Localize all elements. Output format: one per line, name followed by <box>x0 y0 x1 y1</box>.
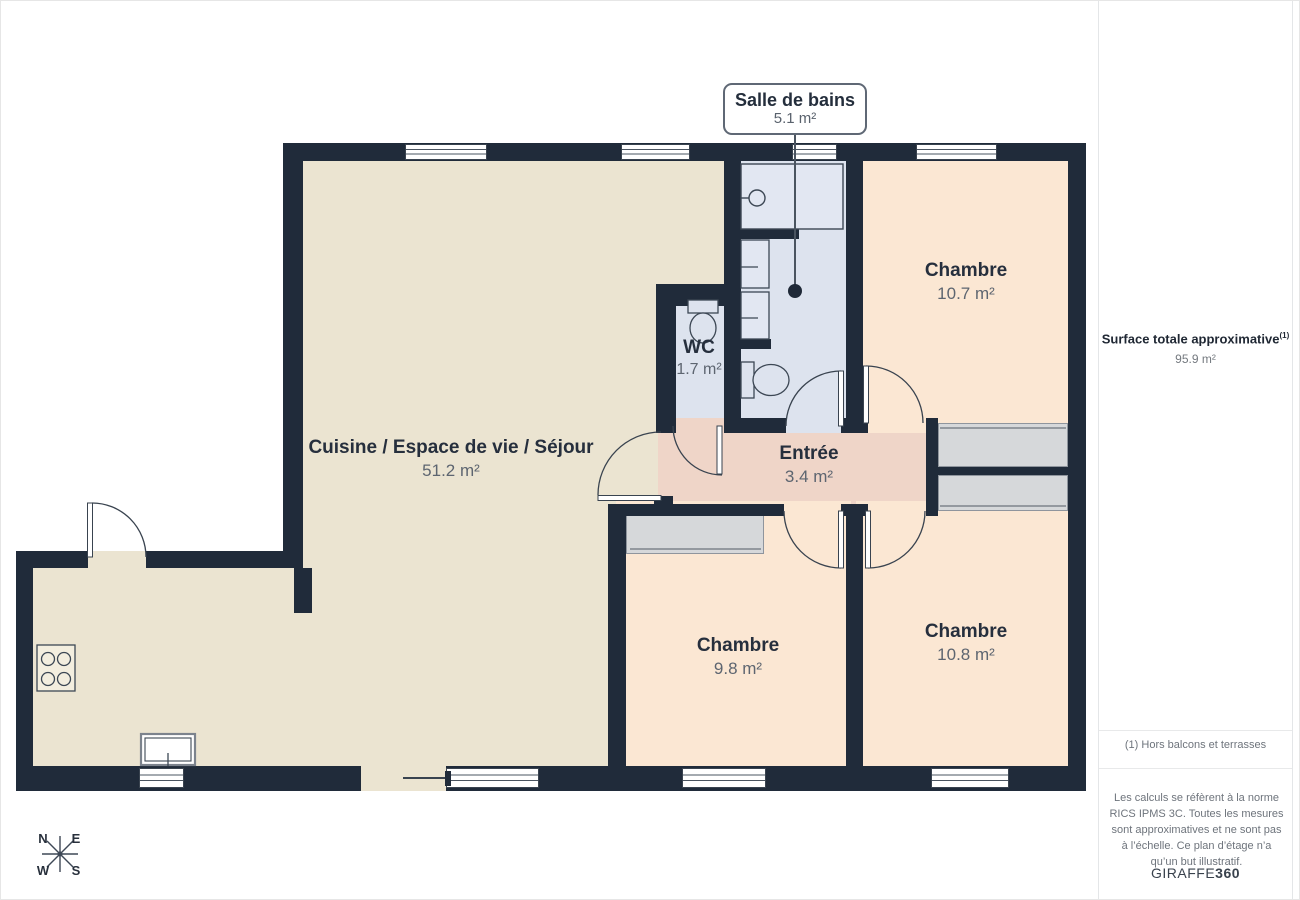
wall-segment <box>283 143 303 554</box>
room-area: 1.7 m² <box>649 361 749 379</box>
brand-logo: GIRAFFE360 <box>1099 865 1292 881</box>
room-area: 3.4 m² <box>739 467 879 487</box>
wc-door-threshold <box>676 418 724 433</box>
compass-n: N <box>38 831 47 846</box>
room-label-chambre3: Chambre 10.8 m² <box>896 621 1036 665</box>
total-area-title-text: Surface totale approximative <box>1102 331 1280 346</box>
total-area-value: 95.9 m² <box>1099 352 1292 366</box>
room-label-cuisine: Cuisine / Espace de vie / Séjour 51.2 m² <box>301 437 601 481</box>
closet <box>626 514 764 554</box>
room-name: Chambre <box>896 260 1036 282</box>
divider <box>1099 730 1292 731</box>
disclaimer-text: Les calculs se réfèrent à la norme RICS … <box>1109 791 1284 871</box>
room-bathroom-floor <box>736 151 851 433</box>
info-sidebar: Surface totale approximative(1) 95.9 m² … <box>1098 1 1293 900</box>
window <box>916 144 997 160</box>
room-name: Chambre <box>896 621 1036 643</box>
entry-door-opening <box>88 551 146 568</box>
wall-segment <box>846 143 863 433</box>
wall-segment <box>608 504 626 766</box>
door-leaf <box>88 503 93 557</box>
floor-plan-canvas: N E W S Cuisine / Espace de vie / Séjour… <box>0 0 1300 900</box>
brand-suffix: 360 <box>1215 865 1240 881</box>
divider <box>1099 768 1292 769</box>
wall-segment <box>846 511 863 766</box>
room-cuisine-extension-floor <box>26 559 303 776</box>
callout-area: 5.1 m² <box>774 110 817 127</box>
door-arc <box>92 503 146 557</box>
compass-e: E <box>72 831 81 846</box>
room-name: WC <box>649 337 749 359</box>
wall-segment <box>926 418 938 516</box>
bathroom-callout: Salle de bains 5.1 m² <box>723 83 867 135</box>
closet <box>938 423 1068 467</box>
brand-name: GIRAFFE <box>1151 865 1215 881</box>
wall-segment <box>16 551 33 791</box>
wall-segment <box>294 568 312 613</box>
total-area-title-footnote-marker: (1) <box>1279 331 1289 340</box>
compass-icon <box>42 836 78 872</box>
room-label-chambre1: Chambre 10.7 m² <box>896 260 1036 304</box>
wall-segment <box>724 229 799 239</box>
room-label-chambre2: Chambre 9.8 m² <box>668 635 808 679</box>
callout-title: Salle de bains <box>735 91 855 111</box>
wall-segment <box>16 551 303 568</box>
footnote-text: (1) Hors balcons et terrasses <box>1099 739 1292 751</box>
wall-segment <box>1068 143 1086 791</box>
compass-s: S <box>72 863 81 878</box>
compass-w: W <box>37 863 50 878</box>
window <box>446 768 539 788</box>
room-name: Entrée <box>739 443 879 465</box>
room-area: 10.7 m² <box>896 284 1036 304</box>
window <box>931 768 1009 788</box>
window <box>405 144 487 160</box>
total-area-title: Surface totale approximative(1) <box>1099 331 1292 346</box>
room-area: 10.8 m² <box>896 645 1036 665</box>
window <box>621 144 690 160</box>
window <box>682 768 766 788</box>
wall-segment <box>619 504 784 516</box>
room-area: 9.8 m² <box>668 659 808 679</box>
compass-letters: N E W S <box>37 831 81 878</box>
closet <box>938 475 1068 511</box>
wall-segment <box>724 418 786 433</box>
sliding-door-opening <box>361 766 446 791</box>
room-label-entree: Entrée 3.4 m² <box>739 443 879 487</box>
room-area: 51.2 m² <box>301 461 601 481</box>
wall-segment <box>656 418 673 433</box>
window <box>139 768 184 788</box>
wall-segment <box>938 467 1068 475</box>
room-label-wc: WC 1.7 m² <box>649 337 749 379</box>
window <box>792 144 837 160</box>
room-name: Chambre <box>668 635 808 657</box>
room-name: Cuisine / Espace de vie / Séjour <box>301 437 601 459</box>
wall-segment <box>841 418 868 433</box>
